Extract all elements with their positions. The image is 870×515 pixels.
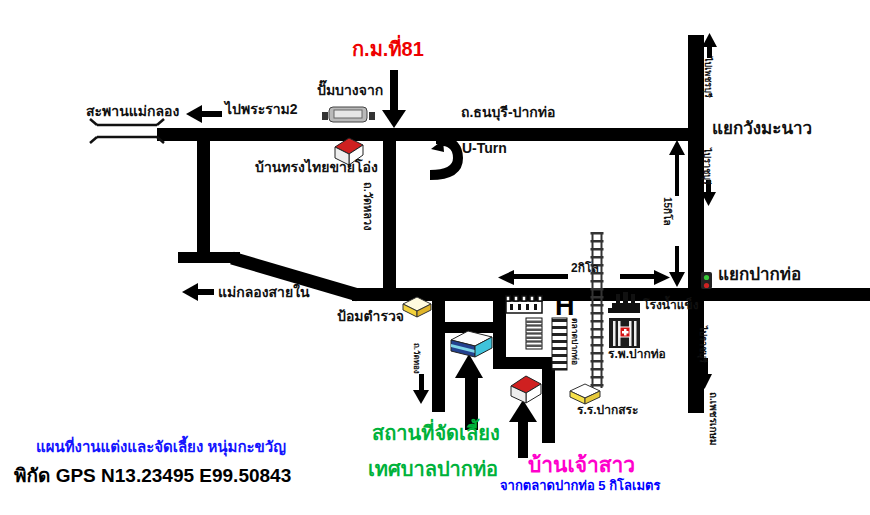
gas-station-icon <box>322 107 375 122</box>
km81-label: ก.ม.ที่81 <box>352 38 424 60</box>
hospital-icon <box>609 318 640 348</box>
from-market-note: จากตลาดปากท่อ 5 กิโลเมตร <box>500 479 660 493</box>
railway-track-icon <box>593 232 602 388</box>
shophouse-rows-icon <box>526 318 542 349</box>
wedding-route-map: สะพานแม่กลอง ไปพระราม2 ปั๊มบางจาก ก.ม.ที… <box>0 0 870 515</box>
pak-tho-hospital-label: ร.พ.ปากท่อ <box>608 348 666 361</box>
roads <box>157 35 870 443</box>
thonburi-paktho-road-label: ถ.ธนบุรี-ปากท่อ <box>461 105 555 120</box>
road-wat-thong <box>432 298 445 412</box>
wat-luang-road-label: ถ.วัดหลวง <box>362 182 373 231</box>
to-phetchaburi-label: ไปเพชรบุรี <box>703 57 712 98</box>
road-wat-luang <box>383 140 396 295</box>
pak-tho-junction-label: แยกปากท่อ <box>718 266 801 285</box>
road-second-horizontal <box>352 288 870 301</box>
ice-factory-label: โรงน้ำแข็ง <box>643 299 699 312</box>
gps-coordinates: พิกัด GPS N13.23495 E99.50843 <box>14 466 291 487</box>
dist-15km-label: 15กิโล <box>662 197 672 226</box>
road-left-vertical <box>197 140 210 260</box>
dist-2km-arrow <box>498 270 514 285</box>
maeklong-inner-label: แม่กลองสายใน <box>218 285 310 300</box>
school-icon <box>570 384 600 404</box>
km81-arrow <box>390 70 398 112</box>
bridge-label: สะพานแม่กลอง <box>86 104 179 119</box>
to-ratchaburi-upper-label: ไปราชบุรี <box>702 148 711 185</box>
to-rama2-label: ไปพระราม2 <box>225 102 298 117</box>
police-box-label: ป้อมตำรวจ <box>337 309 404 324</box>
traffic-light-icon <box>701 272 712 289</box>
to-rama2-arrow <box>200 111 222 117</box>
dist-15km-arrow <box>675 153 679 196</box>
map-title: แผนที่งานแต่งและจัดเลี้ยง หนุ่มกะขวัญ <box>36 439 286 456</box>
bride-house-label: บ้านเจ้าสาว <box>528 453 635 476</box>
pak-tho-market-label: ตลาดปากท่อ <box>570 318 579 365</box>
dist-2km-label: 2กิโล <box>571 262 599 275</box>
municipality-building-icon <box>451 331 492 357</box>
thai-house-label: บ้านทรงไทยขายโอ่ง <box>255 160 378 175</box>
wat-thong-road-label: ถ.วัดทอง <box>412 343 420 374</box>
bridge-icon <box>90 119 164 143</box>
wat-thong-continue-arrow <box>419 374 424 392</box>
u-turn-label: U-Turn <box>462 141 507 156</box>
phetkasem-road-label: ถ.เพชรเกษม <box>708 392 718 446</box>
market-stalls-icon <box>552 318 567 370</box>
maeklong-inner-arrow <box>196 289 214 295</box>
gas-station-label: ปั๊มบางจาก <box>317 83 383 98</box>
bride-house-pointer-arrow <box>518 418 528 458</box>
to-ratchaburi-lower-label: ไปราชบุรี <box>698 326 707 363</box>
arrows <box>182 33 717 458</box>
venue-label-line2: เทศบาลปากท่อ <box>368 458 498 480</box>
road-thonburi-paktho <box>157 128 704 141</box>
venue-label-line1: สถานที่จัดเลี้ยง <box>372 422 500 444</box>
wang-manao-junction-label: แยกวังมะนาว <box>712 120 812 139</box>
bride-house-icon <box>511 376 541 403</box>
pak-sa-school-label: ร.ร.ปากสระ <box>577 404 638 417</box>
